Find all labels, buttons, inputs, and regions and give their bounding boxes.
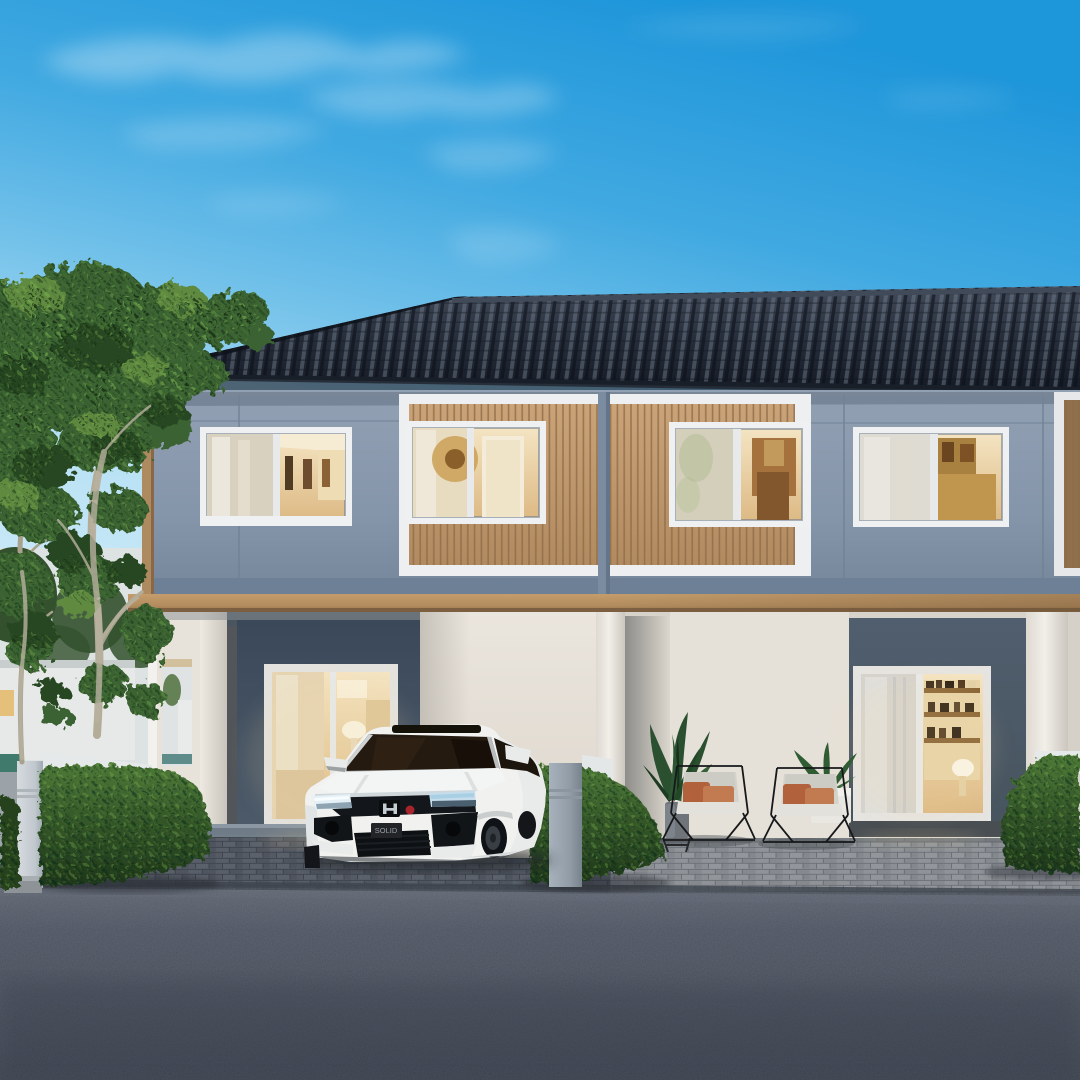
svg-text:SOLID: SOLID	[375, 826, 398, 835]
